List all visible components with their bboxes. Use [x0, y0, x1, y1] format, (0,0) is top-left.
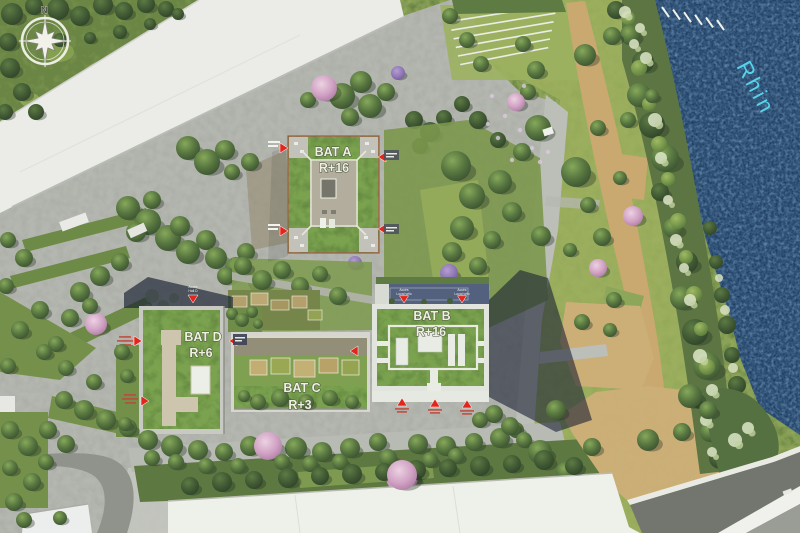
svg-text:BAT B: BAT B	[413, 309, 450, 323]
svg-text:N: N	[41, 5, 48, 15]
svg-text:BAT D: BAT D	[184, 330, 221, 344]
svg-text:BAT A: BAT A	[315, 145, 352, 159]
svg-text:R+16: R+16	[319, 161, 349, 175]
svg-text:Local vélo: Local vélo	[396, 292, 411, 296]
svg-text:R+3: R+3	[288, 398, 311, 412]
svg-text:Hall D: Hall D	[188, 289, 198, 293]
svg-text:Local vélo: Local vélo	[454, 292, 469, 296]
svg-text:BAT C: BAT C	[283, 381, 320, 395]
svg-text:R+6: R+6	[189, 346, 212, 360]
svg-text:R+16: R+16	[416, 325, 446, 339]
